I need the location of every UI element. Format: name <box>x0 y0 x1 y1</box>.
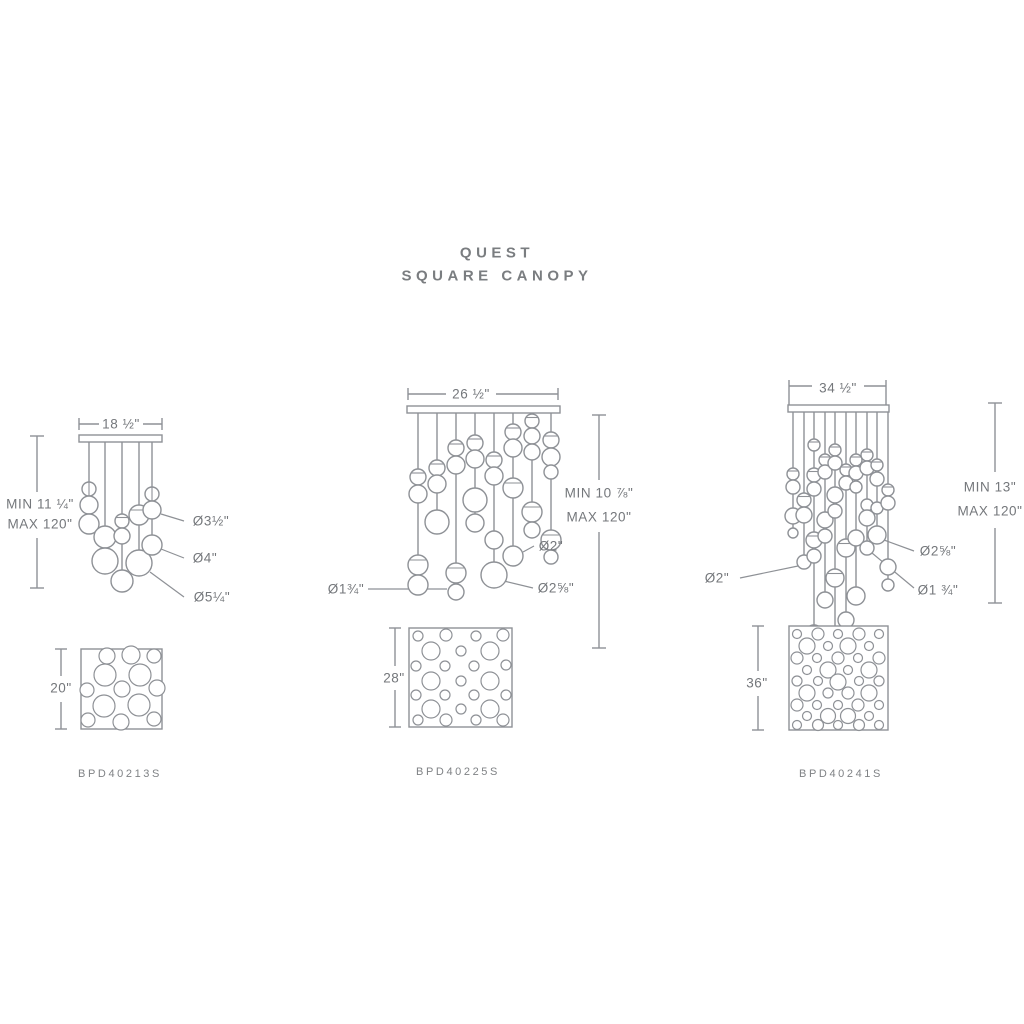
diameter-label: Ø2⅝" <box>920 544 956 559</box>
max-height-label: MAX 120" <box>957 504 1022 519</box>
page-title-line2: SQUARE CANOPY <box>401 268 592 285</box>
fixture-line-art <box>0 0 1024 1024</box>
page-title-line1: QUEST <box>460 245 534 262</box>
diameter-label: Ø5¼" <box>194 590 230 605</box>
diameter-label: Ø2" <box>705 571 730 586</box>
model-number: BPD40225S <box>416 766 500 778</box>
min-height-label: MIN 10 ⅞" <box>565 486 634 501</box>
canopy-size-label: 20" <box>50 681 72 696</box>
diameter-label: Ø2" <box>539 539 564 554</box>
max-height-label: MAX 120" <box>7 517 72 532</box>
diameter-label: Ø2⅝" <box>538 581 574 596</box>
canopy-width-label: 34 ½" <box>819 381 857 396</box>
model-number: BPD40213S <box>78 768 162 780</box>
min-height-label: MIN 13" <box>964 480 1017 495</box>
model-number: BPD40241S <box>799 768 883 780</box>
spec-sheet: QUEST SQUARE CANOPY 18 ½" MIN 11 ¼" MAX … <box>0 0 1024 1024</box>
diameter-label: Ø3½" <box>193 514 229 529</box>
diameter-label: Ø1¾" <box>328 582 364 597</box>
canopy-size-label: 36" <box>746 676 768 691</box>
min-height-label: MIN 11 ¼" <box>6 497 74 512</box>
canopy-size-label: 28" <box>383 671 405 686</box>
canopy-width-label: 18 ½" <box>102 417 140 432</box>
diameter-label: Ø1 ¾" <box>918 583 959 598</box>
canopy-width-label: 26 ½" <box>452 387 490 402</box>
max-height-label: MAX 120" <box>566 510 631 525</box>
diameter-label: Ø4" <box>193 551 218 566</box>
